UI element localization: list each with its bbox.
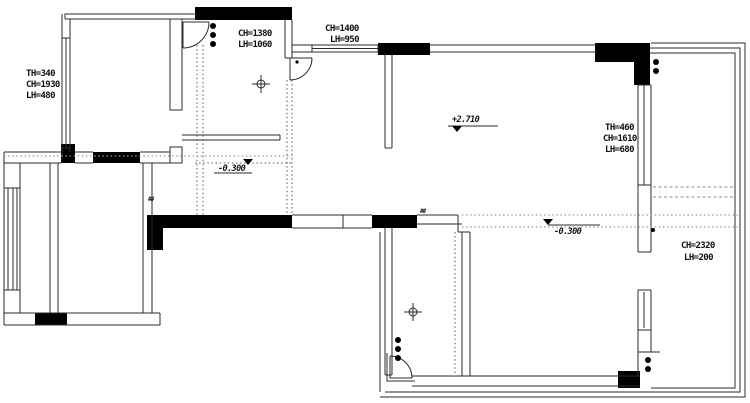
tiny-mark-mid: ## (420, 208, 427, 215)
level-marker-entry: -0.300 (214, 159, 253, 174)
level-marker-living: +2.710 (448, 115, 498, 132)
hall-dim-ch: CH=1380 (238, 29, 272, 39)
balcony-dim-lh: LH=200 (684, 253, 713, 263)
floor-plan-canvas: +2.710 -0.300 -0.300 TH=340 CH=1930 LH=4… (0, 0, 750, 403)
entry-door-swing (290, 58, 312, 80)
bedroom-top-left-walls (62, 14, 197, 163)
living-top-wall (385, 45, 597, 148)
hall-door-swing (183, 22, 209, 48)
door-hinge-dot (295, 60, 298, 63)
corridor-socket-symbols (395, 337, 401, 361)
level-marker-terrace: -0.300 (543, 219, 600, 237)
top-left-dim-lh: LH=480 (26, 91, 55, 101)
reference-lines (4, 45, 738, 376)
right-dim-ch: CH=1610 (603, 134, 637, 144)
top-window (292, 45, 378, 52)
balcony-outline (380, 43, 745, 397)
bottom-section-walls (380, 228, 640, 392)
top-left-dim-ch: CH=1930 (26, 80, 60, 90)
hall-socket-symbols (210, 23, 216, 47)
tiny-mark-left: ## (148, 196, 155, 203)
top-left-dim-th: TH=340 (26, 69, 55, 79)
hall-dim-lh: LH=1060 (238, 40, 272, 50)
load-bearing-walls (35, 7, 650, 388)
bottom-door-swing (387, 353, 415, 381)
right-dim-th: TH=460 (605, 123, 634, 133)
balcony-dim-ch: CH=2320 (681, 241, 715, 251)
top-mid-dim-ch: CH=1400 (325, 24, 359, 34)
right-dim-lh: LH=680 (605, 145, 634, 155)
level-terrace-label: -0.300 (554, 227, 582, 237)
level-living-label: +2.710 (452, 115, 480, 125)
left-wing-walls (4, 152, 160, 325)
balcony-window-wall (638, 85, 660, 376)
top-mid-dim-lh: LH=950 (330, 35, 359, 45)
floor-drain-icon-2 (404, 303, 422, 321)
floor-drain-icon (252, 75, 270, 93)
hallway-walls (182, 20, 292, 140)
